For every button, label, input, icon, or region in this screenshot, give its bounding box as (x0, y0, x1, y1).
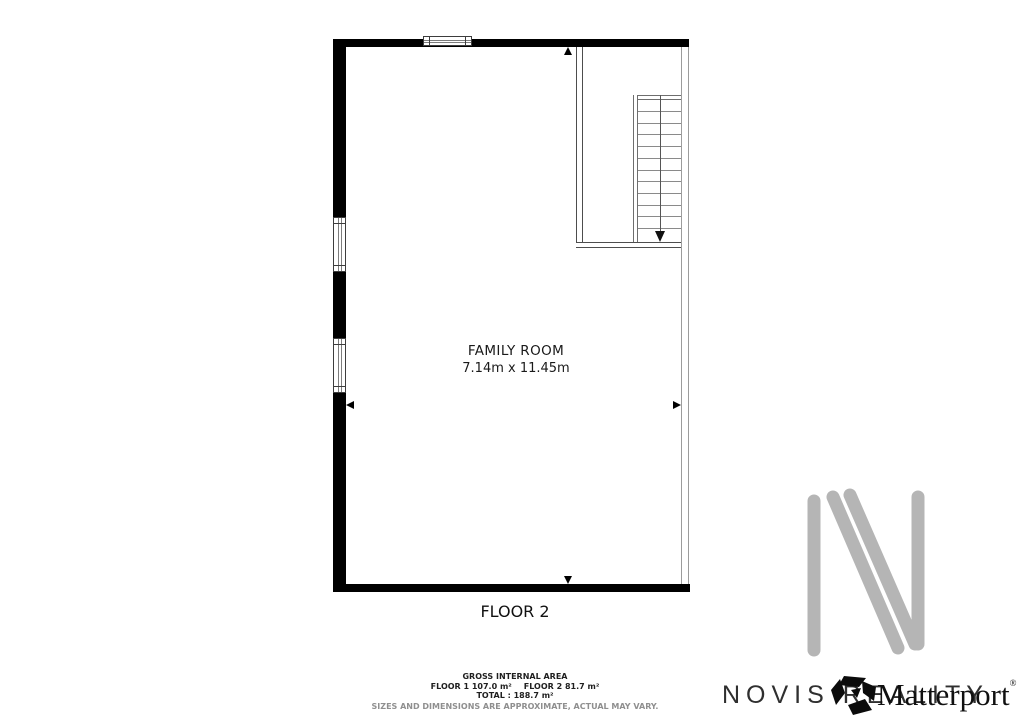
floor1-area: FLOOR 1 107.0 m² (431, 682, 512, 691)
room-dimensions: 7.14m x 11.45m (391, 361, 641, 376)
stair-direction-line (660, 95, 661, 232)
disclaimer: SIZES AND DIMENSIONS ARE APPROXIMATE, AC… (365, 702, 665, 712)
wall-left (333, 39, 346, 592)
room-name: FAMILY ROOM (391, 343, 641, 359)
window-top (423, 36, 472, 46)
window-left-lower (333, 338, 346, 393)
novis-n-logo-icon (795, 487, 935, 662)
stair-down-arrow-icon (655, 231, 665, 242)
dimension-arrow-down-icon (564, 576, 572, 584)
wall-bottom (333, 584, 690, 592)
dimension-arrow-left-icon (346, 401, 354, 409)
dimension-arrow-up-icon (564, 47, 572, 55)
area-summary: GROSS INTERNAL AREA FLOOR 1 107.0 m²FLOO… (365, 672, 665, 711)
matterport-wordmark: Matterport® (877, 676, 1016, 714)
area-summary-total: TOTAL : 188.7 m² (365, 691, 665, 701)
room-label: FAMILY ROOM 7.14m x 11.45m (391, 343, 641, 376)
wall-top (333, 39, 689, 47)
area-summary-title: GROSS INTERNAL AREA (365, 672, 665, 682)
matterport-branding: Matterport® (831, 676, 1016, 716)
floor-label: FLOOR 2 (415, 602, 615, 621)
dimension-arrow-right-icon (673, 401, 681, 409)
window-left-upper (333, 217, 346, 272)
matterport-logo-icon (831, 676, 877, 716)
area-summary-floors: FLOOR 1 107.0 m²FLOOR 2 81.7 m² (365, 682, 665, 692)
wall-right-thin (681, 47, 689, 584)
floor2-area: FLOOR 2 81.7 m² (524, 682, 600, 691)
registered-mark: ® (1010, 678, 1017, 688)
stairwell-wall-vertical (576, 47, 583, 243)
